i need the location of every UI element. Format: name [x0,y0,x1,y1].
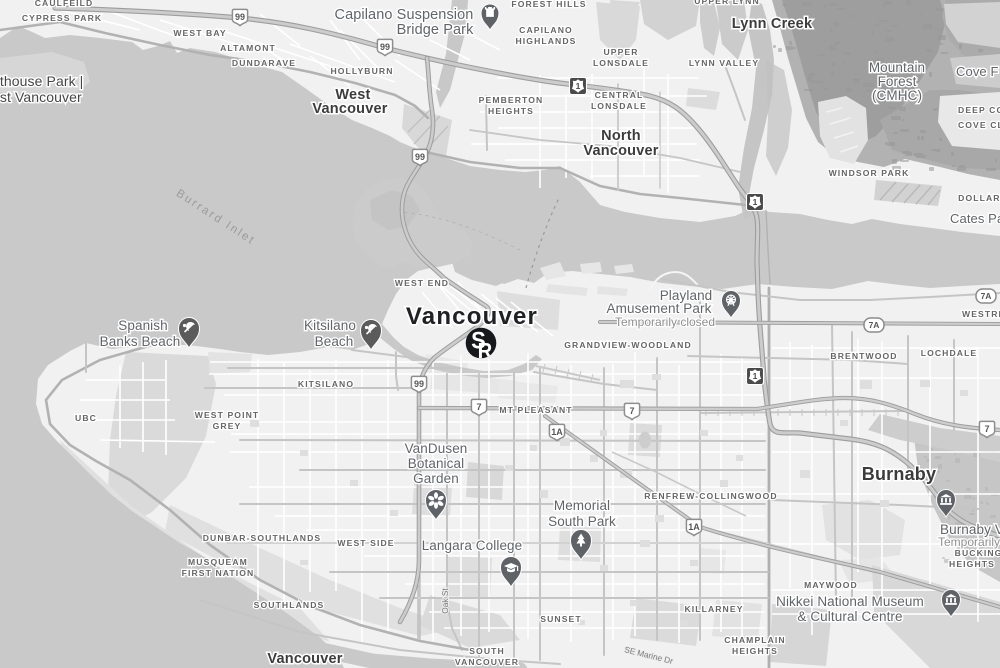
svg-text:VanDusen: VanDusen [405,441,468,456]
svg-text:UPPER LYNN: UPPER LYNN [694,0,760,6]
svg-text:1A: 1A [688,522,700,532]
svg-text:Vancouver: Vancouver [406,303,538,330]
svg-text:BRENTWOOD: BRENTWOOD [830,351,897,361]
svg-text:1A: 1A [551,427,563,437]
svg-text:North: North [601,128,641,144]
svg-text:DEEP COVE: DEEP COVE [958,105,1000,115]
svg-text:COVE CLIFF: COVE CLIFF [958,120,1000,130]
svg-text:1: 1 [576,81,581,91]
svg-text:Beach: Beach [315,334,354,349]
svg-text:Cove F: Cove F [956,64,999,79]
svg-text:Vancouver: Vancouver [312,101,387,117]
svg-text:est Vancouver: est Vancouver [0,89,82,105]
svg-text:hthouse Park |: hthouse Park | [0,73,83,89]
svg-text:Oak St: Oak St [440,588,450,614]
svg-text:KITSILANO: KITSILANO [298,379,354,389]
svg-text:KILLARNEY: KILLARNEY [684,604,743,614]
svg-text:Mountain: Mountain [869,60,925,75]
svg-text:Burnaby: Burnaby [862,464,936,484]
svg-text:Vancouver: Vancouver [583,143,658,159]
svg-text:SOUTH: SOUTH [469,646,505,656]
svg-text:UPPER: UPPER [603,47,638,57]
svg-text:99: 99 [415,152,425,162]
svg-text:HEIGHTS: HEIGHTS [732,646,778,656]
svg-text:PEMBERTON: PEMBERTON [479,95,544,105]
svg-text:Spanish: Spanish [118,318,168,333]
svg-text:HEIGHTS: HEIGHTS [488,106,534,116]
svg-text:Vancouver: Vancouver [267,651,342,667]
svg-text:Nikkei National Museum: Nikkei National Museum [776,594,924,609]
svg-text:7A: 7A [869,320,880,330]
svg-text:ALTAMONT: ALTAMONT [220,43,276,53]
svg-text:LONSDALE: LONSDALE [591,101,647,111]
svg-text:GRANDVIEW-WOODLAND: GRANDVIEW-WOODLAND [564,340,692,350]
svg-text:BUCKINGHAM: BUCKINGHAM [955,548,1000,558]
svg-text:Garden: Garden [413,471,459,486]
svg-text:CAPILANO: CAPILANO [519,25,573,35]
svg-text:DUNDARAVE: DUNDARAVE [232,58,296,68]
svg-text:CHAMPLAIN: CHAMPLAIN [724,635,785,645]
svg-text:Banks Beach: Banks Beach [100,334,181,349]
svg-text:LOCHDALE: LOCHDALE [921,348,978,358]
svg-text:MT PLEASANT: MT PLEASANT [499,405,572,415]
svg-text:FOREST HILLS: FOREST HILLS [511,0,586,9]
svg-text:CAULFEILD: CAULFEILD [35,0,94,8]
svg-text:Forest: Forest [878,74,917,89]
svg-text:MAYWOOD: MAYWOOD [804,580,858,590]
svg-text:7: 7 [629,406,634,416]
svg-text:CENTRAL: CENTRAL [595,90,644,100]
svg-text:HIGHLANDS: HIGHLANDS [516,36,577,46]
svg-text:WEST BAY: WEST BAY [173,28,226,38]
svg-text:WEST SIDE: WEST SIDE [337,538,394,548]
svg-text:LONSDALE: LONSDALE [593,58,649,68]
svg-text:Temporarily: Temporarily [938,535,1000,549]
svg-text:1: 1 [753,371,758,381]
svg-text:Capilano Suspension: Capilano Suspension [335,7,474,23]
svg-text:SOUTHLANDS: SOUTHLANDS [254,600,325,610]
svg-text:WESTRIDGE: WESTRIDGE [962,309,1000,319]
svg-text:Cates Pa: Cates Pa [950,211,1000,226]
svg-text:WINDSOR PARK: WINDSOR PARK [829,168,910,178]
svg-text:99: 99 [235,12,245,22]
svg-text:7A: 7A [981,291,992,301]
svg-text:South Park: South Park [548,514,616,529]
svg-text:(CMHC): (CMHC) [872,88,922,103]
svg-text:CYPRESS PARK: CYPRESS PARK [22,13,102,23]
svg-text:7: 7 [476,402,481,412]
svg-text:DOLLARTON: DOLLARTON [958,193,1000,203]
svg-text:HOLLYBURN: HOLLYBURN [330,66,393,76]
svg-text:Temporarily closed: Temporarily closed [615,315,715,329]
svg-text:WEST END: WEST END [395,278,449,288]
svg-text:HEIGHTS: HEIGHTS [949,559,995,569]
svg-text:RENFREW-COLLINGWOOD: RENFREW-COLLINGWOOD [644,491,777,501]
svg-text:DUNBAR-SOUTHLANDS: DUNBAR-SOUTHLANDS [203,533,321,543]
svg-text:Memorial: Memorial [554,498,610,513]
svg-text:Lynn Creek: Lynn Creek [732,16,813,32]
svg-text:99: 99 [380,42,390,52]
svg-text:1: 1 [753,197,758,207]
svg-text:& Cultural Centre: & Cultural Centre [797,609,902,624]
svg-text:Kitsilano: Kitsilano [304,318,356,333]
svg-text:Langara College: Langara College [422,538,523,553]
svg-text:GREY: GREY [213,421,242,431]
svg-text:FIRST NATION: FIRST NATION [182,568,255,578]
svg-text:VANCOUVER: VANCOUVER [455,657,519,667]
svg-text:99: 99 [414,379,424,389]
svg-text:7: 7 [984,424,989,434]
svg-text:MUSQUEAM: MUSQUEAM [188,557,248,567]
svg-text:Bridge Park: Bridge Park [397,22,475,38]
svg-text:Amusement Park: Amusement Park [607,301,712,316]
svg-text:LYNN VALLEY: LYNN VALLEY [689,58,759,68]
svg-text:SUNSET: SUNSET [540,614,581,624]
svg-text:UBC: UBC [75,413,97,423]
svg-text:Botanical: Botanical [408,456,464,471]
svg-text:WEST POINT: WEST POINT [195,410,259,420]
